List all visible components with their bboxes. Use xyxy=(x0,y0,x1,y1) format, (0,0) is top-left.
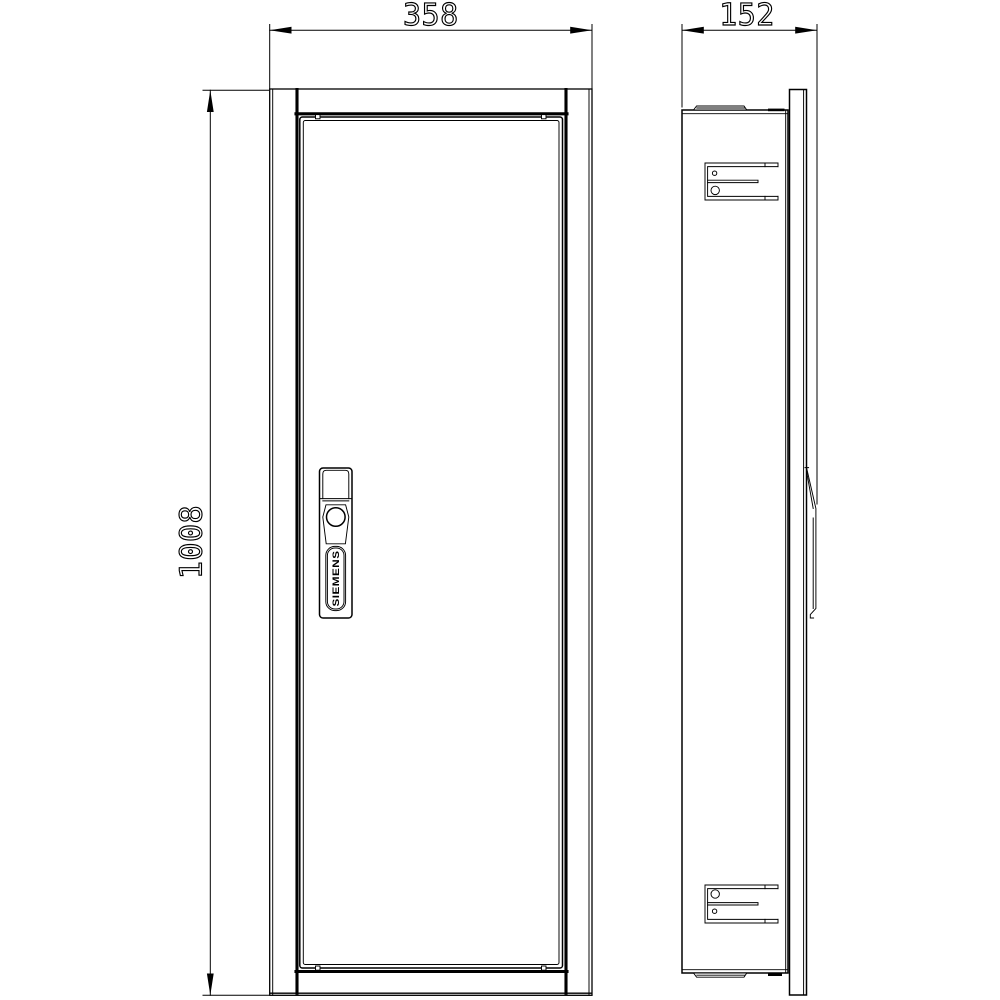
door-tab-top-right xyxy=(542,115,547,119)
gasket-top xyxy=(768,109,785,112)
front-handle: SIEMENS xyxy=(320,468,353,618)
handle-brand-label: SIEMENS xyxy=(331,551,342,607)
height-dimension: 1008 xyxy=(175,90,269,995)
side-body-outline xyxy=(682,110,788,973)
mounting-bracket-top xyxy=(705,163,778,200)
lock-cylinder xyxy=(327,508,346,527)
arrowhead-left xyxy=(682,27,704,34)
bracket-hole-large xyxy=(711,186,719,194)
bracket-middle-tongue xyxy=(708,903,758,905)
width-value-label: 358 xyxy=(403,0,459,33)
front-view: SIEMENS xyxy=(270,89,592,995)
arrowhead-right xyxy=(795,27,817,34)
arrowhead-bottom xyxy=(207,974,214,996)
bracket-hole-small xyxy=(712,171,716,175)
mounting-bracket-bottom xyxy=(705,885,778,923)
arrowhead-top xyxy=(207,90,214,112)
depth-dimension: 152 xyxy=(682,0,817,504)
arrowhead-left xyxy=(270,27,292,34)
gasket-bottom xyxy=(768,973,782,976)
drawing-canvas: SIEMENS xyxy=(0,0,1000,1000)
bracket-middle-tongue xyxy=(708,180,758,182)
door-tab-bottom-left xyxy=(316,966,321,970)
door-tab-bottom-right xyxy=(542,966,547,970)
front-outer-frame xyxy=(270,89,592,995)
arrowhead-right xyxy=(570,27,592,34)
bracket-hole-small xyxy=(712,909,716,913)
height-value-label: 1008 xyxy=(175,505,210,579)
width-dimension: 358 xyxy=(270,0,592,88)
bracket-hole-large xyxy=(711,890,719,898)
side-view xyxy=(682,90,816,996)
enclosure-dimension-drawing: SIEMENS xyxy=(0,0,1000,1000)
door-tab-top-left xyxy=(316,115,321,119)
depth-value-label: 152 xyxy=(719,0,775,33)
